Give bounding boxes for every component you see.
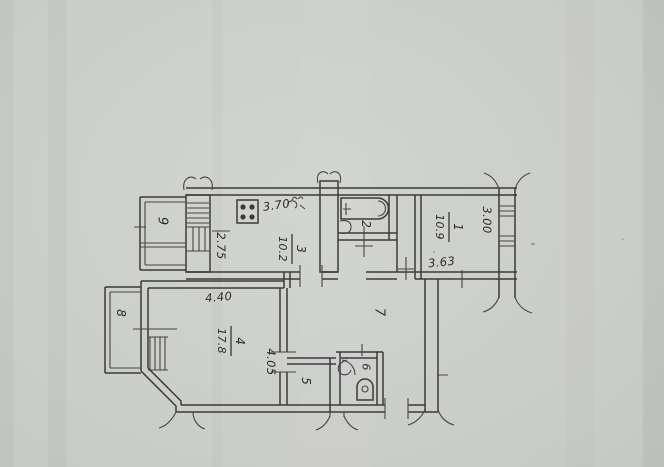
room-4-number-label: 4 bbox=[233, 337, 247, 345]
room-5-label: 5 bbox=[299, 377, 313, 385]
svg-text:3.63: 3.63 bbox=[427, 254, 456, 271]
paper-texture bbox=[0, 0, 664, 467]
room-3-area-label: 10.2 bbox=[276, 236, 289, 262]
svg-text:8: 8 bbox=[114, 309, 128, 317]
room-1-area-label: 10.9 bbox=[433, 214, 446, 240]
room-4-area-label: 17.8 bbox=[215, 328, 228, 354]
room-1-number-label: 1 bbox=[451, 223, 465, 231]
svg-text:3.70: 3.70 bbox=[262, 196, 291, 214]
room-7-label: 7 bbox=[372, 308, 387, 317]
room-6-label: 6 bbox=[360, 363, 373, 370]
svg-text:2.75: 2.75 bbox=[214, 232, 228, 259]
room-2-label: 2 bbox=[359, 220, 373, 228]
stove-icon bbox=[237, 200, 258, 223]
svg-text:5: 5 bbox=[299, 377, 313, 385]
room-4-label: 4 17.8 bbox=[215, 326, 247, 356]
balcony-8 bbox=[105, 287, 141, 373]
svg-text:2: 2 bbox=[359, 220, 373, 228]
dim-room4-depth-label: 4.05 bbox=[264, 348, 278, 375]
dim-room1-depth-label: 3.00 bbox=[480, 206, 494, 233]
balcony-9 bbox=[134, 197, 186, 270]
svg-text:9: 9 bbox=[155, 217, 170, 225]
svg-text:4.05: 4.05 bbox=[264, 348, 278, 375]
floor-plan-drawing: 3 10.2 1 10.9 4 17.8 2 5 6 7 8 bbox=[0, 0, 664, 467]
svg-text:6: 6 bbox=[360, 363, 373, 370]
room-9-label: 9 bbox=[155, 217, 170, 225]
svg-text:7: 7 bbox=[372, 308, 387, 317]
room-labels: 3 10.2 1 10.9 4 17.8 2 5 6 7 8 bbox=[114, 212, 465, 385]
room-8-label: 8 bbox=[114, 309, 128, 317]
dim-kitchen-depth-label: 2.75 bbox=[214, 232, 228, 259]
scanned-floor-plan-page: 3 10.2 1 10.9 4 17.8 2 5 6 7 8 bbox=[0, 0, 664, 467]
room-3-number-label: 3 bbox=[294, 245, 308, 253]
dim-kitchen-width-label: 3.70 bbox=[262, 196, 291, 214]
dim-room4-width-label: 4.40 bbox=[204, 289, 232, 305]
dim-room1-width-label: 3.63 bbox=[427, 254, 456, 271]
svg-text:3.00: 3.00 bbox=[480, 206, 494, 233]
svg-text:4.40: 4.40 bbox=[204, 289, 232, 305]
room-1-label: 1 10.9 bbox=[433, 212, 465, 242]
